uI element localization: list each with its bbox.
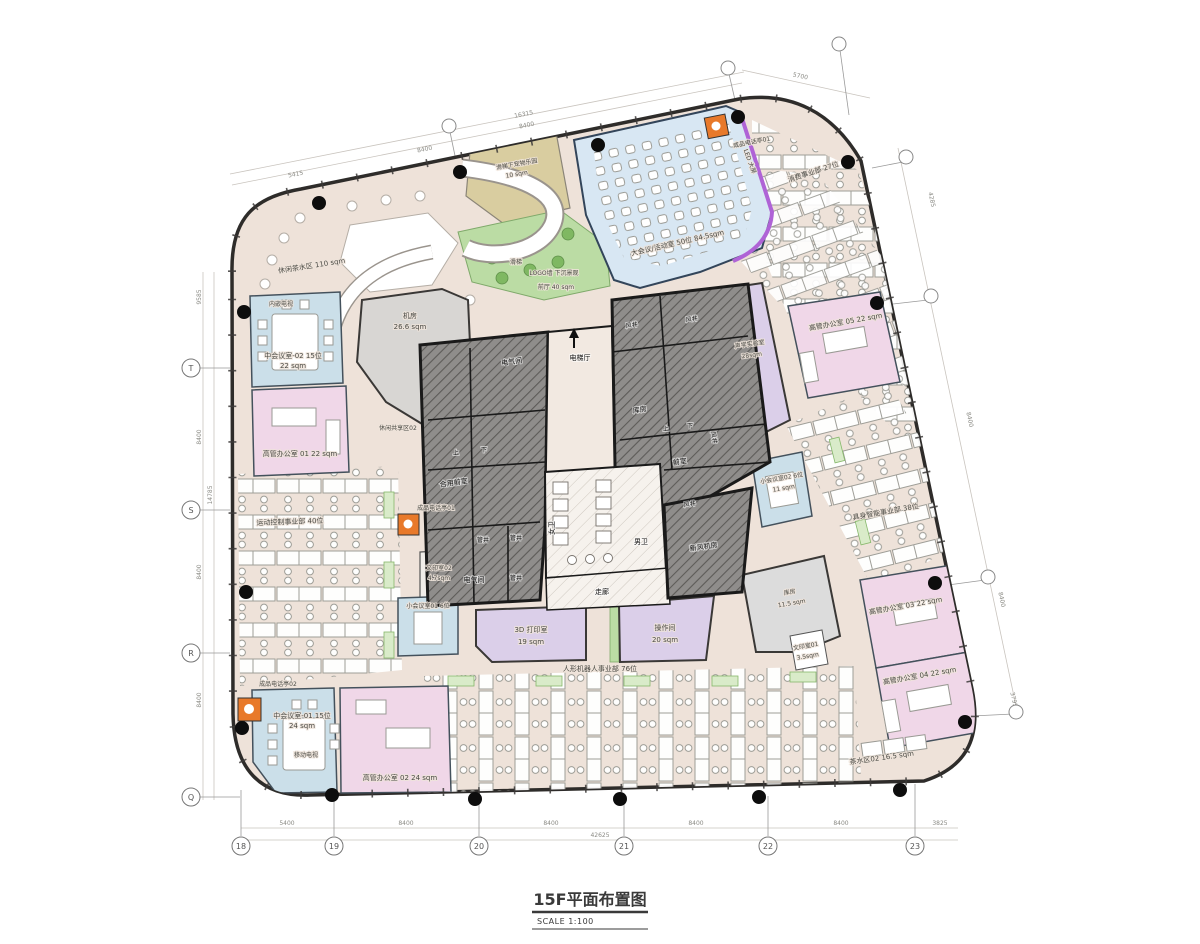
grid-bubble-18: 18 [236, 842, 246, 851]
grid-bubble-19: 19 [329, 842, 339, 851]
label-humanoid-dept: 人形机器人事业部 76位 [563, 664, 637, 673]
label-print-02-2: 4.7sqm [428, 575, 450, 582]
label-wind-shaft-4: 风井 [683, 499, 696, 509]
room-exec-01 [252, 386, 349, 476]
label-operation-2: 20 sqm [652, 636, 678, 644]
dim-top-2: 8400 [417, 145, 434, 155]
grid-bubble-right-3 [981, 570, 995, 584]
drawing-scale: SCALE 1:100 [537, 917, 594, 926]
label-stair-up-2: 上 [663, 425, 669, 433]
label-wind-shaft-1: 风井 [625, 320, 638, 330]
label-phone-booth-01b: 成品电话亭01 [417, 504, 455, 512]
label-exec-01: 高管办公室 01 22 sqm [263, 449, 338, 458]
room-mid-meeting-01 [252, 688, 339, 793]
label-mobile-tv: 移动电视 [294, 751, 318, 759]
room-exec-05 [788, 292, 900, 398]
dim-bottom-4: 8400 [688, 820, 703, 827]
label-phone-booth-02: 成品电话亭02 [259, 680, 297, 688]
phone-booth-01-mid [398, 514, 419, 535]
dim-left-4: 8400 [196, 692, 203, 707]
interior [0, 34, 1085, 794]
label-machine-1: 机房 [403, 311, 417, 320]
grid-bubble-top-2 [721, 61, 735, 75]
label-mid-meeting-02-1: 中会议室-02 15位 [264, 351, 322, 360]
dim-top-right: 5700 [792, 72, 809, 82]
label-slide: 滑梯 [510, 258, 522, 266]
label-mid-meeting-01-2: 24 sqm [289, 722, 315, 730]
label-operation-1: 操作间 [655, 623, 676, 632]
phone-booth-01-top [704, 114, 729, 139]
dim-bottom-overall: 42625 [590, 832, 609, 839]
label-logo-wall: LOGO墙 下沉景观 [529, 269, 578, 277]
desks-motion-control [238, 466, 402, 686]
grid-bubble-20: 20 [474, 842, 484, 851]
grid-bubble-top-1 [442, 119, 456, 133]
dim-top-3: 8400 [519, 121, 536, 131]
dim-left-1: 9585 [196, 289, 203, 304]
label-stair-down-1: 下 [481, 447, 487, 454]
dim-right-3: 8400 [996, 591, 1006, 608]
label-mid-meeting-01-1: 中会议室-01 15位 [273, 711, 331, 720]
grid-bubble-22: 22 [763, 842, 773, 851]
dim-bottom-3: 8400 [543, 820, 558, 827]
label-men-wc: 男卫 [634, 538, 648, 546]
label-leisure-share: 休闲共享区02 [379, 424, 417, 432]
dim-left-2: 8400 [196, 429, 203, 444]
label-stair-down-2: 下 [687, 423, 693, 430]
grid-bubble-right-2 [924, 289, 938, 303]
dim-bottom-5: 8400 [833, 820, 848, 827]
grid-bubble-top-3 [832, 37, 846, 51]
label-elevator-hall: 电梯厅 [570, 353, 591, 362]
label-small-meeting-01: 小会议室01 6位 [406, 602, 449, 610]
label-print-02-1: 文印室02 [426, 564, 452, 572]
dim-bottom-2: 8400 [398, 820, 413, 827]
dim-bottom-6: 3825 [932, 820, 947, 827]
label-3d-print-2: 19 sqm [518, 638, 544, 646]
dim-right-2: 8400 [964, 411, 974, 428]
drawing-title: 15F平面布置图 [533, 890, 646, 909]
grid-bubble-right-1 [899, 150, 913, 164]
grid-bubble-R: R [188, 649, 194, 658]
room-3d-print [476, 606, 586, 662]
label-women-wc: 女卫 [547, 521, 556, 535]
dim-top-overall: 16315 [514, 109, 534, 120]
label-stair-up-1: 上 [453, 449, 459, 457]
label-corridor: 走廊 [595, 587, 609, 596]
dim-left-3: 8400 [196, 564, 203, 579]
label-wind-shaft-2: 风井 [685, 314, 698, 324]
label-machine-2: 26.6 sqm [394, 323, 427, 331]
floor-plan-canvas: 5415 8400 16315 8400 5700 9585 8400 1478… [0, 0, 1200, 944]
label-3d-print-1: 3D 打印室 [514, 625, 547, 634]
grid-bubble-S: S [188, 506, 193, 515]
room-mid-meeting-02 [250, 292, 343, 387]
grid-bubble-right-4 [1009, 705, 1023, 719]
grid-bubble-T: T [188, 364, 194, 373]
room-exec-03 [860, 565, 968, 668]
label-pipe-shaft-3: 管井 [510, 574, 522, 582]
grid-bubble-21: 21 [619, 842, 629, 851]
label-elec-room-s: 电气间 [464, 575, 485, 584]
label-pipe-shaft-1: 管井 [477, 536, 489, 544]
title-block: 15F平面布置图 SCALE 1:100 [532, 890, 648, 929]
dim-left-overall: 14785 [207, 485, 214, 504]
phone-booth-02 [238, 698, 261, 721]
room-exec-04 [876, 652, 980, 748]
grid-bubble-23: 23 [910, 842, 920, 851]
dim-top-1: 5415 [288, 170, 305, 180]
grid-bubble-Q: Q [188, 793, 194, 802]
label-embed-tv: 内嵌电视 [269, 300, 293, 308]
label-pipe-shaft-2: 管井 [510, 534, 522, 542]
dim-right-1: 4285 [926, 191, 936, 208]
dim-bottom-1: 5400 [279, 820, 294, 827]
label-exec-02: 高管办公室 02 24 sqm [363, 773, 438, 782]
label-mid-meeting-02-2: 22 sqm [280, 362, 306, 370]
label-front-hall: 前厅 40 sqm [538, 283, 574, 291]
